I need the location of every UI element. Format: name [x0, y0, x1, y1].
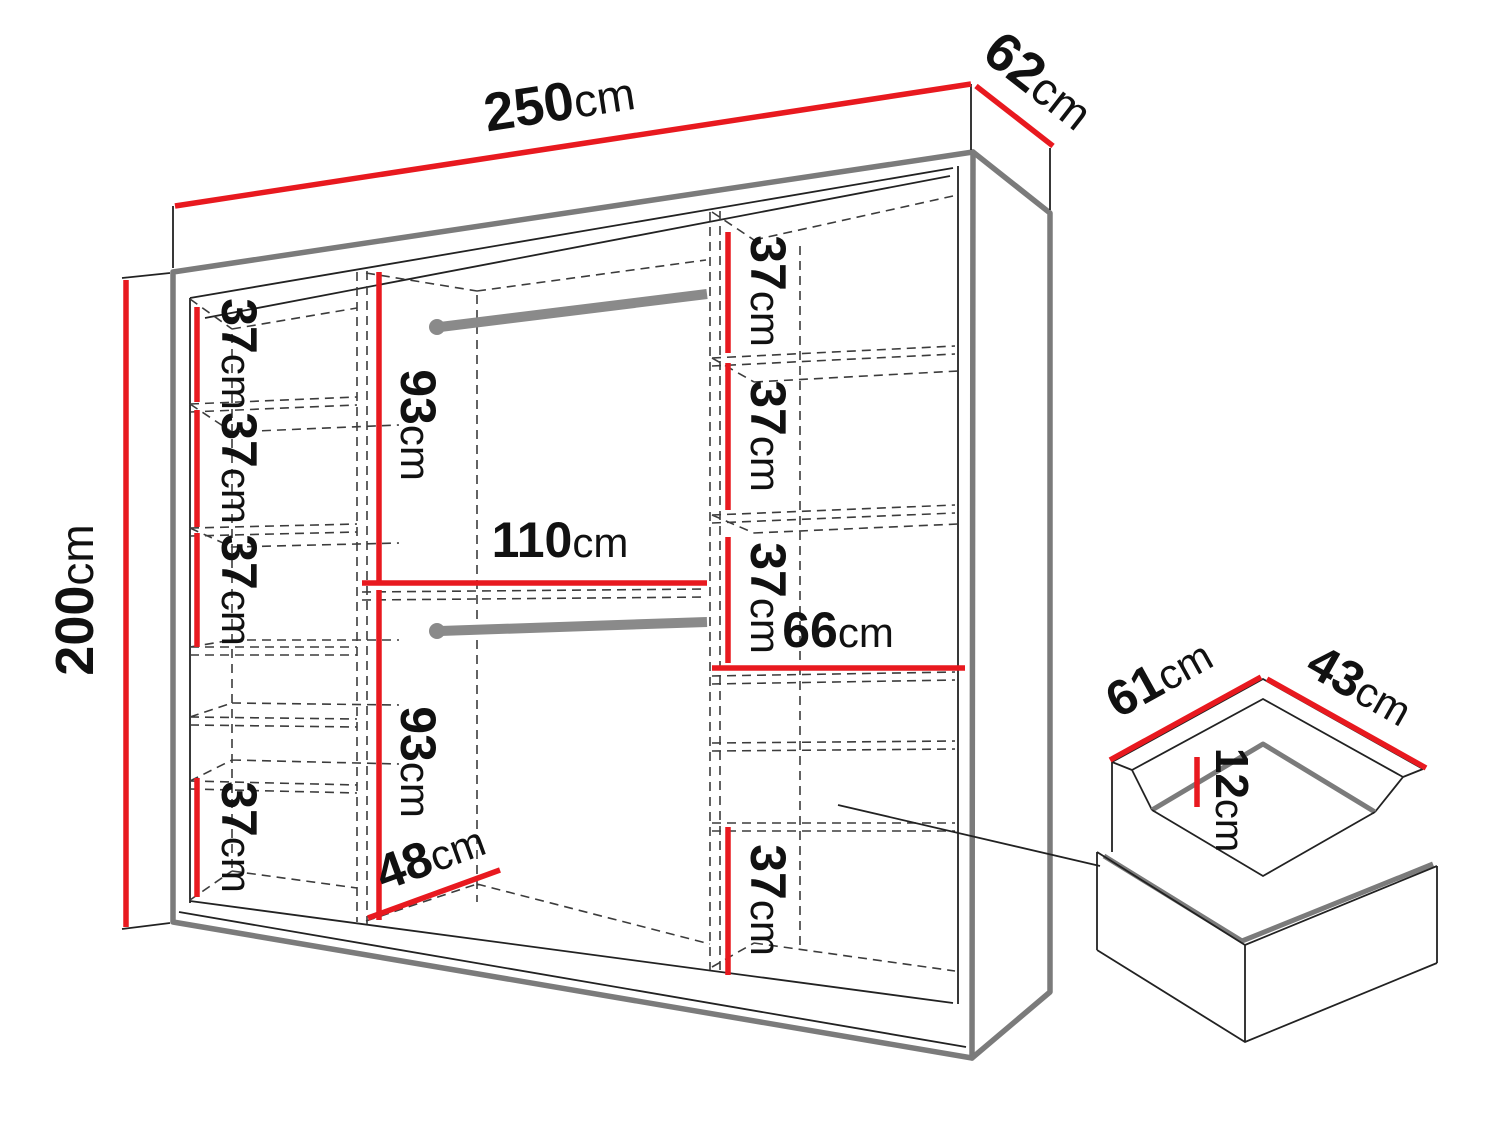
cabinet-interior-edges	[179, 166, 966, 1047]
dim-right-shelf-1-unit: cm	[742, 291, 789, 347]
dim-hang-lower-unit: cm	[392, 762, 439, 818]
dim-hang-upper-value: 93	[390, 369, 446, 425]
dim-right-bottom-unit: cm	[742, 900, 789, 956]
drawer-front-lip-edge	[1104, 856, 1433, 941]
dimension-labels: 250cm 62cm 200cm 37cm 37cm 37cm 37cm 93c…	[45, 20, 1423, 956]
dim-mid-width-label: 110cm	[492, 512, 629, 568]
hanging-rails	[429, 294, 707, 639]
dim-left-shelf-2-unit: cm	[213, 468, 260, 524]
wardrobe-dimension-diagram: 250cm 62cm 200cm 37cm 37cm 37cm 37cm 93c…	[0, 0, 1500, 1125]
dim-right-shelf-1-value: 37	[740, 235, 796, 291]
drawer-floor-edges	[1152, 810, 1375, 876]
dim-height-value: 200	[45, 586, 105, 676]
dim-right-shelf-3-value: 37	[740, 542, 796, 598]
upper-hanging-rail	[440, 294, 707, 327]
dim-left-shelf-1-label: 37cm	[211, 298, 267, 410]
drawer-inner-base-edges	[1152, 744, 1375, 812]
dim-drawer-height-unit: cm	[1207, 799, 1251, 852]
dim-height-label: 200cm	[45, 524, 105, 675]
dim-left-shelf-1-unit: cm	[213, 354, 260, 410]
dim-left-shelf-4-unit: cm	[213, 837, 260, 893]
dim-left-shelf-1-value: 37	[211, 298, 267, 354]
dim-floor-depth-label: 48cm	[368, 811, 492, 902]
drawer-detail	[838, 677, 1437, 1042]
dim-left-shelf-4-value: 37	[211, 781, 267, 837]
lower-hanging-rail	[440, 622, 707, 631]
dim-left-shelf-3-unit: cm	[213, 590, 260, 646]
lower-rail-end-cap	[429, 623, 445, 639]
diagram-canvas: 250cm 62cm 200cm 37cm 37cm 37cm 37cm 93c…	[0, 0, 1500, 1125]
cabinet-side-face	[972, 152, 1050, 1058]
dim-height-unit: cm	[51, 524, 103, 585]
dim-right-shelf-2-value: 37	[740, 380, 796, 436]
drawer-leader-line	[838, 805, 1100, 866]
dim-width-value: 250	[480, 70, 578, 143]
dim-right-shelf-2-unit: cm	[742, 436, 789, 492]
dim-right-bottom-value: 37	[740, 844, 796, 900]
dim-drawer-height-value: 12	[1206, 748, 1258, 799]
dim-hang-upper-label: 93cm	[390, 369, 446, 481]
dim-hang-upper-unit: cm	[392, 425, 439, 481]
dim-hang-lower-label: 93cm	[390, 706, 446, 818]
dim-width-label: 250cm	[480, 61, 639, 143]
dim-depth-label: 62cm	[973, 20, 1106, 142]
dim-right-shelf-2-label: 37cm	[740, 380, 796, 492]
dim-drawer-height-label: 12cm	[1206, 748, 1258, 853]
interior-ceiling-back-edge	[205, 176, 950, 318]
dim-left-shelf-3-value: 37	[211, 534, 267, 590]
dim-right-bottom-label: 37cm	[740, 844, 796, 956]
dim-right-width-unit: cm	[838, 609, 894, 656]
dim-right-width-label: 66cm	[782, 602, 894, 658]
dim-hang-lower-value: 93	[390, 706, 446, 762]
dim-width-unit: cm	[570, 67, 638, 128]
cabinet-outline	[173, 152, 1050, 1058]
cabinet-front-face	[173, 152, 973, 1058]
plinth-edge	[179, 912, 966, 1047]
dim-right-width-value: 66	[782, 602, 838, 658]
upper-rail-end-cap	[429, 319, 445, 335]
dim-right-shelf-1-label: 37cm	[740, 235, 796, 347]
dim-left-shelf-4-label: 37cm	[211, 781, 267, 893]
dim-drawer-width-label: 43cm	[1298, 633, 1423, 737]
dim-left-shelf-2-label: 37cm	[211, 412, 267, 524]
dim-mid-width-unit: cm	[572, 519, 628, 566]
dim-mid-width-value: 110	[492, 512, 573, 568]
dim-left-shelf-2-value: 37	[211, 412, 267, 468]
dim-left-shelf-3-label: 37cm	[211, 534, 267, 646]
